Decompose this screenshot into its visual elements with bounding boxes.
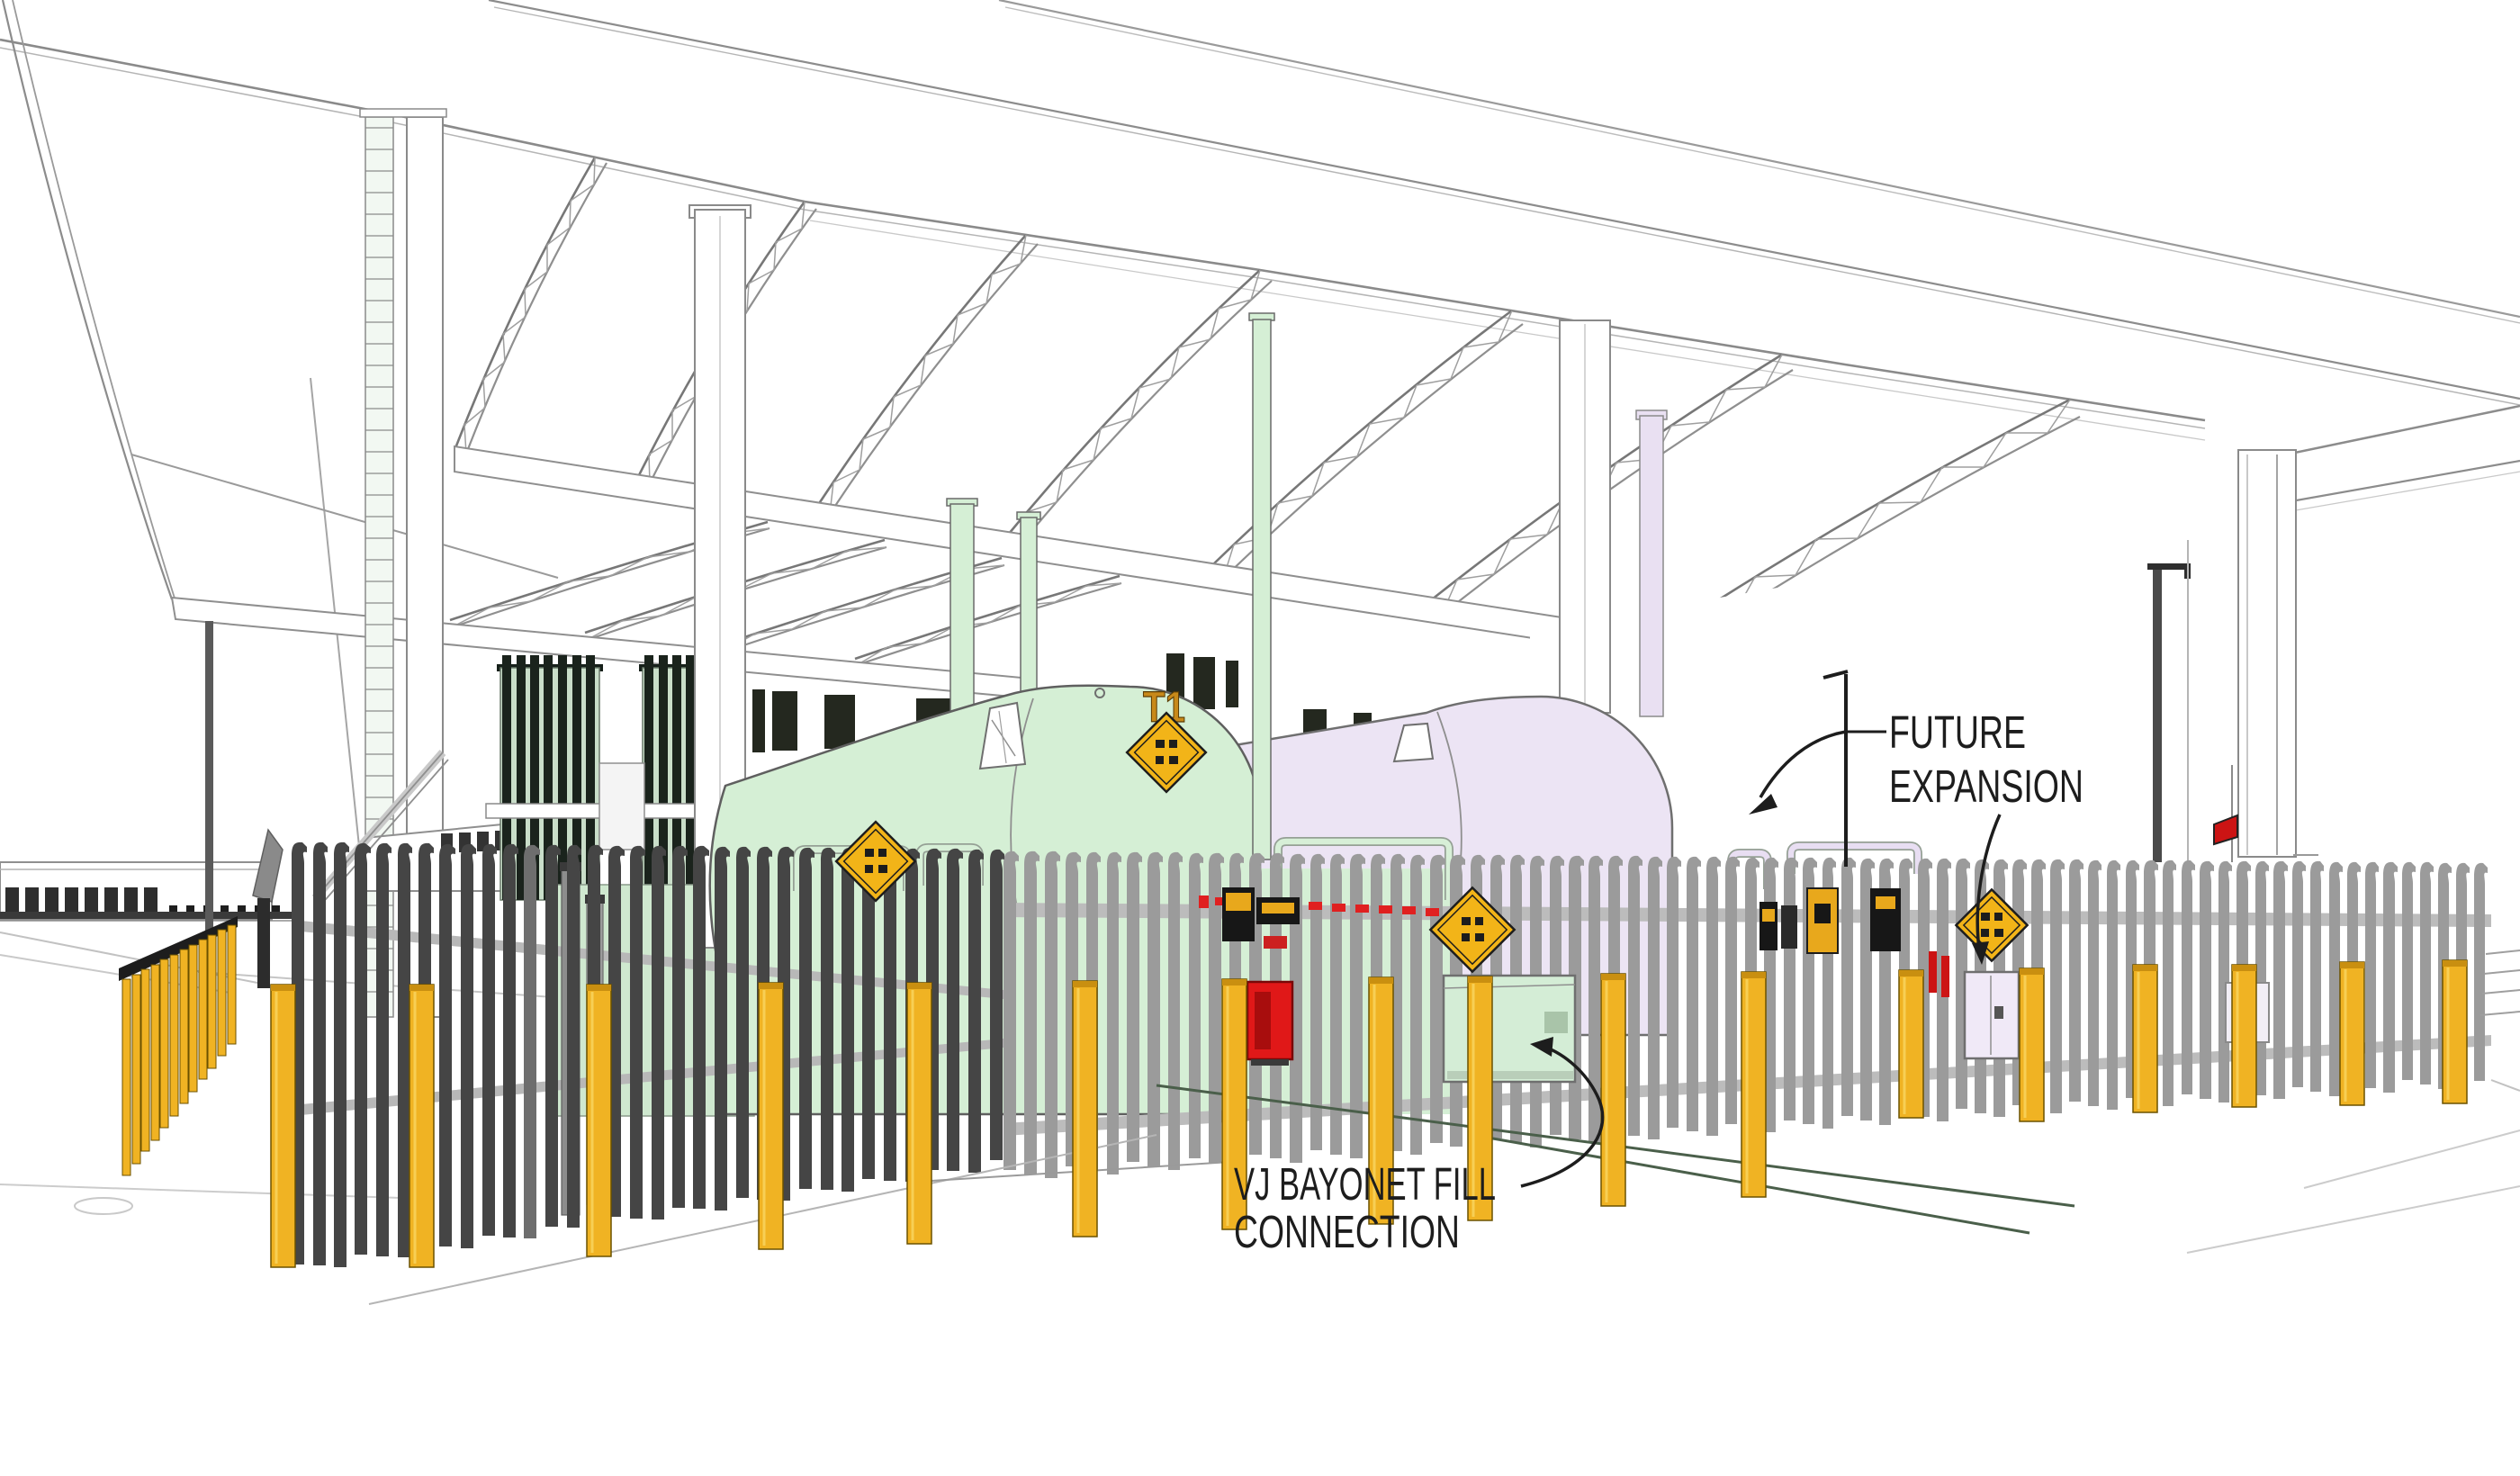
svg-text:VJ BAYONET FILL: VJ BAYONET FILL [1234, 1158, 1496, 1210]
svg-text:CONNECTION: CONNECTION [1234, 1206, 1460, 1257]
svg-text:EXPANSION: EXPANSION [1889, 760, 2083, 812]
svg-text:FUTURE: FUTURE [1889, 706, 2026, 758]
